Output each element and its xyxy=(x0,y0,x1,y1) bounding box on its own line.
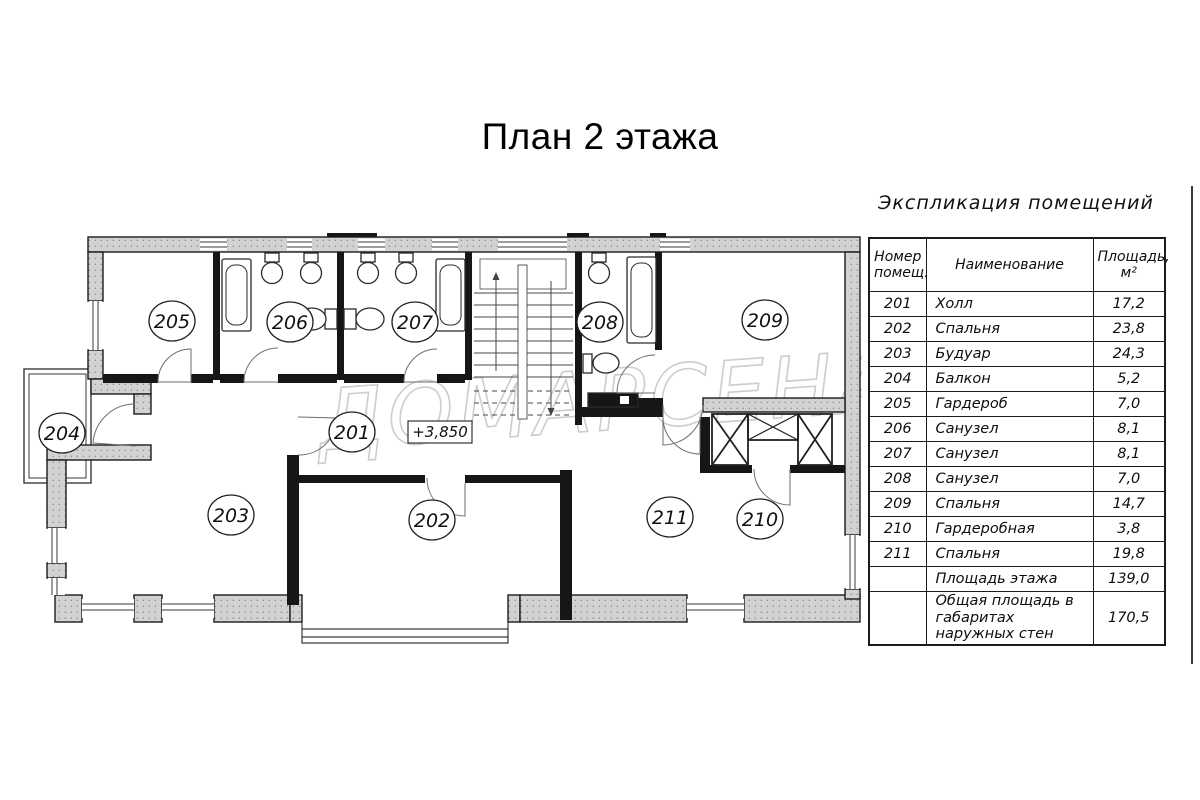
door-room-205 xyxy=(158,349,191,382)
legend-cell-number: 207 xyxy=(869,442,926,467)
legend-cell-number: 202 xyxy=(869,317,926,342)
elevation-value: +3,850 xyxy=(412,423,468,441)
legend-cell-number: 203 xyxy=(869,342,926,367)
legend-row: 204Балкон5,2 xyxy=(869,367,1165,392)
legend-cell-name: Площадь этажа xyxy=(926,567,1093,592)
svg-text:204: 204 xyxy=(44,423,80,445)
legend-cell-area: 8,1 xyxy=(1093,417,1165,442)
legend-cell-area: 17,2 xyxy=(1093,292,1165,317)
legend-cell-name: Спальня xyxy=(926,317,1093,342)
legend-cell-name: Санузел xyxy=(926,467,1093,492)
toilet-icon xyxy=(344,308,384,330)
legend-cell-name: Гардеробная xyxy=(926,517,1093,542)
legend-cell-number: 204 xyxy=(869,367,926,392)
legend-row: 207Санузел8,1 xyxy=(869,442,1165,467)
legend-row: 203Будуар24,3 xyxy=(869,342,1165,367)
room-label: 207 xyxy=(392,302,438,342)
sink-icon xyxy=(396,253,417,284)
legend-row: 205Гардероб7,0 xyxy=(869,392,1165,417)
legend-row: 201Холл17,2 xyxy=(869,292,1165,317)
legend-row: 202Спальня23,8 xyxy=(869,317,1165,342)
svg-text:206: 206 xyxy=(272,312,308,334)
sheet-frame-line xyxy=(1191,186,1193,664)
svg-text:211: 211 xyxy=(652,507,688,529)
svg-text:201: 201 xyxy=(334,422,370,444)
legend-body: 201Холл17,2202Спальня23,8203Будуар24,320… xyxy=(869,292,1165,646)
legend-cell-name: Балкон xyxy=(926,367,1093,392)
legend-cell-name: Санузел xyxy=(926,442,1093,467)
legend-row: Площадь этажа139,0 xyxy=(869,567,1165,592)
legend-cell-number: 208 xyxy=(869,467,926,492)
bathtub-icon xyxy=(627,257,656,343)
legend-cell-number: 210 xyxy=(869,517,926,542)
door-room-206 xyxy=(244,348,278,382)
legend-cell-number xyxy=(869,592,926,646)
legend-cell-area: 19,8 xyxy=(1093,542,1165,567)
room-label: 208 xyxy=(577,302,623,342)
svg-text:208: 208 xyxy=(582,312,618,334)
legend-cell-area: 24,3 xyxy=(1093,342,1165,367)
sink-icon xyxy=(358,253,379,284)
legend-header-row: Номер помещ. Наименование Площадь, м² xyxy=(869,238,1165,292)
legend-table: Номер помещ. Наименование Площадь, м² 20… xyxy=(868,237,1166,646)
toilet-icon xyxy=(583,353,619,373)
legend-cell-area: 14,7 xyxy=(1093,492,1165,517)
legend-cell-area: 170,5 xyxy=(1093,592,1165,646)
elevation-mark: +3,850 xyxy=(408,421,472,443)
legend-cell-area: 3,8 xyxy=(1093,517,1165,542)
legend-cell-number: 209 xyxy=(869,492,926,517)
room-label: 209 xyxy=(742,300,788,340)
legend-row: 208Санузел7,0 xyxy=(869,467,1165,492)
legend-cell-name: Будуар xyxy=(926,342,1093,367)
legend-cell-name: Санузел xyxy=(926,417,1093,442)
sink-icon xyxy=(262,253,283,284)
bathtub-icon xyxy=(222,259,251,331)
legend-cell-name: Гардероб xyxy=(926,392,1093,417)
legend-col-area: Площадь, м² xyxy=(1093,238,1165,292)
sink-icon xyxy=(301,253,322,284)
legend-col-name: Наименование xyxy=(926,238,1093,292)
legend-cell-name: Холл xyxy=(926,292,1093,317)
room-label: 206 xyxy=(267,302,313,342)
legend-row: 209Спальня14,7 xyxy=(869,492,1165,517)
legend-title: Экспликация помещений xyxy=(868,192,1164,214)
legend-cell-number: 201 xyxy=(869,292,926,317)
legend-cell-area: 23,8 xyxy=(1093,317,1165,342)
legend-cell-number: 205 xyxy=(869,392,926,417)
room-label: 203 xyxy=(208,495,254,535)
legend-cell-name: Общая площадь в габаритах наружных стен xyxy=(926,592,1093,646)
legend-row: Общая площадь в габаритах наружных стен1… xyxy=(869,592,1165,646)
page-title: План 2 этажа xyxy=(0,116,1200,158)
legend-cell-number: 211 xyxy=(869,542,926,567)
legend-row: 206Санузел8,1 xyxy=(869,417,1165,442)
bathtub-icon xyxy=(436,259,465,331)
svg-text:202: 202 xyxy=(414,510,450,532)
legend-cell-name: Спальня xyxy=(926,542,1093,567)
legend-cell-area: 5,2 xyxy=(1093,367,1165,392)
legend-cell-area: 7,0 xyxy=(1093,467,1165,492)
room-label: 205 xyxy=(149,301,195,341)
sink-icon xyxy=(589,253,610,284)
legend-col-number: Номер помещ. xyxy=(869,238,926,292)
legend-cell-area: 139,0 xyxy=(1093,567,1165,592)
svg-text:203: 203 xyxy=(213,505,249,527)
legend: Экспликация помещений Номер помещ. Наиме… xyxy=(868,192,1164,646)
legend-cell-number xyxy=(869,567,926,592)
room-label: 211 xyxy=(647,497,693,537)
legend-cell-area: 8,1 xyxy=(1093,442,1165,467)
door-balcony xyxy=(93,404,135,446)
svg-text:207: 207 xyxy=(397,312,433,334)
legend-cell-name: Спальня xyxy=(926,492,1093,517)
room-label: 201 xyxy=(329,412,375,452)
floor-plan: ДОМАРСЕНАЛ xyxy=(22,233,862,645)
room-label: 202 xyxy=(409,500,455,540)
room-label: 204 xyxy=(39,413,85,453)
legend-row: 211Спальня19,8 xyxy=(869,542,1165,567)
legend-cell-area: 7,0 xyxy=(1093,392,1165,417)
svg-text:210: 210 xyxy=(742,509,778,531)
svg-text:205: 205 xyxy=(154,311,190,333)
svg-text:209: 209 xyxy=(747,310,783,332)
room-label: 210 xyxy=(737,499,783,539)
cabinet xyxy=(588,393,638,407)
bay-window-wall xyxy=(302,622,508,643)
legend-cell-number: 206 xyxy=(869,417,926,442)
legend-row: 210Гардеробная3,8 xyxy=(869,517,1165,542)
